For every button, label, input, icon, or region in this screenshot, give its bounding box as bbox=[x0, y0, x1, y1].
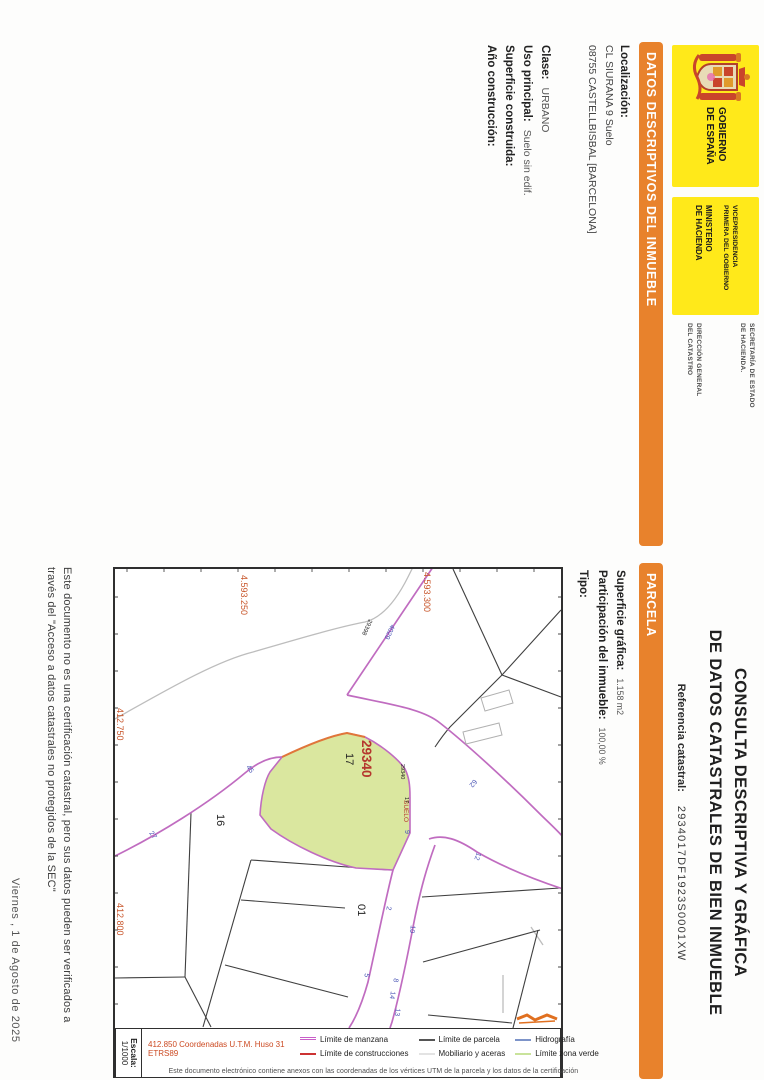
document-date: Viernes , 1 de Agosto de 2025 bbox=[9, 878, 21, 1078]
tipo-row: Tipo: bbox=[575, 570, 593, 598]
mobiliario-line-swatch bbox=[419, 1053, 435, 1055]
suelo-label: SUELO bbox=[402, 800, 409, 822]
legend-item-zona-verde: Límite zona verde bbox=[515, 1047, 599, 1060]
legend-item-mobiliario: Mobiliario y aceras bbox=[419, 1047, 506, 1060]
document-title: CONSULTA DESCRIPTIVA Y GRÁFICA DE DATOS … bbox=[702, 567, 752, 1078]
gobierno-text: GOBIERNO DE ESPAÑA bbox=[704, 107, 728, 165]
manzana-number-label: 29340 bbox=[359, 740, 374, 778]
legend-footnote: Este documento electrónico contiene anex… bbox=[148, 1068, 599, 1075]
svg-text:14: 14 bbox=[388, 991, 396, 1000]
zona-verde-line-swatch bbox=[515, 1053, 531, 1055]
referencia-catastral: Referencia catastral:2934017DF1923S0001X… bbox=[675, 567, 687, 1078]
spain-coat-of-arms-icon bbox=[680, 51, 751, 103]
scanned-cadastral-document: GOBIERNO DE ESPAÑA VICEPRESIDENCIA PRIME… bbox=[0, 0, 764, 1080]
parcel-01-label: 01 bbox=[355, 904, 367, 916]
manzana-line-swatch bbox=[300, 1037, 316, 1043]
easting-label-1: 412.750 bbox=[115, 708, 125, 741]
northing-label-2: 4.593.300 bbox=[422, 572, 432, 612]
referencia-value: 2934017DF1923S0001XW bbox=[675, 806, 687, 961]
superficie-grafica-row: Superficie gráfica:1.158 m2 bbox=[612, 570, 630, 715]
scale-cell: Escala: 1/1000 bbox=[116, 1029, 142, 1077]
northing-label-1: 4.593.250 bbox=[239, 575, 249, 615]
legend-item-construcciones: Límite de construcciones bbox=[300, 1047, 409, 1060]
legend-item-manzana: Límite de manzana bbox=[300, 1033, 409, 1046]
ministerio-box: VICEPRESIDENCIA PRIMERA DEL GOBIERNO MIN… bbox=[672, 197, 759, 315]
address-line-2: 08755 CASTELLBISBAL [BARCELONA] bbox=[586, 45, 598, 234]
easting-label-2: 412.800 bbox=[115, 903, 125, 936]
superficie-grafica-value: 1.158 m2 bbox=[615, 678, 625, 715]
referencia-label: Referencia catastral: bbox=[675, 684, 687, 792]
uso-principal-row: Uso principal:Suelo sin edif. bbox=[519, 45, 537, 196]
svg-text:10: 10 bbox=[408, 925, 416, 934]
localizacion-row: Localización: bbox=[616, 45, 634, 118]
utm-coordinates-note: 412.850 Coordenadas U.T.M. Huso 31 ETRS8… bbox=[148, 1040, 300, 1058]
map-legend: Escala: 1/1000 412.850 Coordenadas U.T.M… bbox=[115, 1028, 561, 1078]
title-line-1: CONSULTA DESCRIPTIVA Y GRÁFICA bbox=[727, 567, 752, 1078]
cadastral-map-svg: 4.593.250 4.593.300 412.750 412.800 2934… bbox=[113, 567, 563, 1078]
participacion-value: 100,00 % bbox=[597, 728, 607, 765]
participacion-row: Participación del inmueble:100,00 % bbox=[594, 570, 612, 765]
clase-value: URBANO bbox=[539, 88, 551, 133]
manzana-small-label: 29340 bbox=[399, 764, 405, 779]
legend-item-parcela: Límite de parcela bbox=[419, 1033, 506, 1046]
svg-text:13: 13 bbox=[393, 1008, 401, 1017]
scale-label: Escala: bbox=[129, 1033, 138, 1073]
address-line-1: CL SIURANA 9 Suelo bbox=[603, 45, 615, 146]
secretaria-text: SECRETARÍA DE ESTADO DE HACIENDA. bbox=[738, 323, 756, 453]
parcel-number-label: 17 bbox=[343, 753, 355, 765]
parcel-small-label: 17 bbox=[403, 797, 409, 803]
clase-row: Clase:URBANO bbox=[537, 45, 555, 132]
cadastral-map: 4.593.250 4.593.300 412.750 412.800 2934… bbox=[113, 567, 563, 1078]
uso-value: Suelo sin edif. bbox=[521, 130, 533, 196]
hidrografia-line-swatch bbox=[515, 1039, 531, 1041]
section-bar-datos-descriptivos: DATOS DESCRIPTIVOS DEL INMUEBLE bbox=[639, 42, 663, 546]
section-bar-parcela: PARCELA bbox=[639, 563, 663, 1079]
scale-value: 1/1000 bbox=[120, 1033, 129, 1073]
ministerio-text: VICEPRESIDENCIA PRIMERA DEL GOBIERNO MIN… bbox=[693, 205, 738, 290]
legend-item-hidrografia: Hidrografía bbox=[515, 1033, 599, 1046]
svg-text:9: 9 bbox=[403, 830, 410, 834]
parcela-line-swatch bbox=[419, 1039, 435, 1041]
gobierno-logo-box: GOBIERNO DE ESPAÑA bbox=[672, 45, 759, 187]
legend-items: Límite de manzana Límite de construccion… bbox=[300, 1033, 599, 1060]
title-line-2: DE DATOS CATASTRALES DE BIEN INMUEBLE bbox=[702, 567, 727, 1078]
legend-content: 412.850 Coordenadas U.T.M. Huso 31 ETRS8… bbox=[142, 1029, 603, 1077]
construcciones-line-swatch bbox=[300, 1053, 316, 1055]
disclaimer-text: Este documento no es una certificación c… bbox=[43, 567, 75, 1080]
direccion-text: DIRECCIÓN GENERAL DEL CATASTRO bbox=[685, 323, 703, 453]
parcel-16-label: 16 bbox=[214, 814, 226, 826]
superficie-construida-row: Superficie construida: bbox=[501, 45, 519, 166]
anio-construccion-row: Año construcción: bbox=[483, 45, 501, 147]
